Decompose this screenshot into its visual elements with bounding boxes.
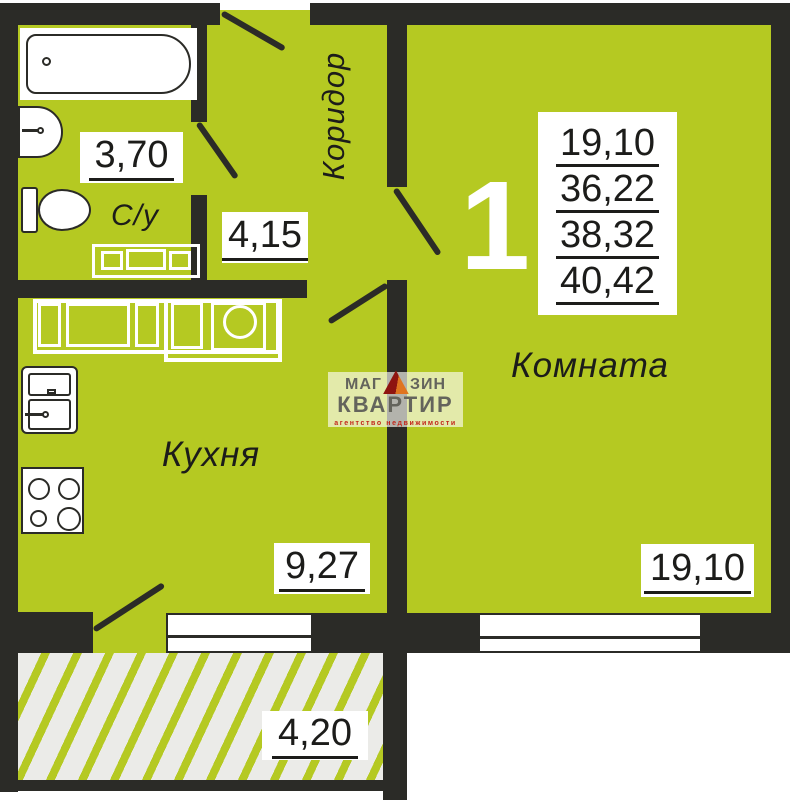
wall-corridor-room (387, 25, 407, 187)
counter-module-3 (135, 303, 159, 347)
living-room-name: Комната (505, 342, 675, 390)
bathroom-area-value: 3,70 (89, 134, 175, 181)
stove-burner-1 (28, 478, 50, 500)
wall-top-right (310, 3, 790, 25)
cabinet-drawer-2 (126, 249, 166, 270)
stove-burner-3 (30, 510, 47, 527)
wall-left (0, 3, 18, 792)
stove-burner-4 (57, 507, 81, 531)
floor-plan: 3,70 4,15 9,27 19,10 4,20 С/у Коридор Ко… (0, 0, 793, 800)
wall-hall-kitchen (18, 280, 307, 298)
agency-watermark: МАГ ЗИН КВАРТИР агентство недвижимости (328, 372, 463, 427)
watermark-tagline: агентство недвижимости (334, 418, 457, 429)
toilet-tank (21, 187, 38, 233)
wall-bottom-center (313, 613, 480, 653)
watermark-brand-left: МАГ (345, 377, 382, 393)
room-window-sill (478, 636, 702, 639)
bathroom-name: С/у (100, 196, 170, 236)
area-summary-box: 19,10 36,22 38,32 40,42 (538, 112, 677, 315)
triangle-logo-icon (383, 370, 409, 394)
wall-balcony-bottom (18, 780, 383, 791)
balcony-area-value: 4,20 (272, 712, 358, 759)
stove-burner-2 (58, 478, 80, 500)
summary-living-area: 19,10 (556, 124, 659, 167)
wall-kitchen-room (387, 280, 407, 653)
counter-module-1 (38, 303, 61, 347)
counter-module-4 (171, 302, 203, 349)
watermark-brand-right: ЗИН (410, 377, 446, 393)
watermark-brand-bottom: КВАРТИР (337, 393, 453, 417)
cabinet-drawer-3 (169, 251, 191, 270)
washbasin-tap-dot (37, 127, 44, 134)
room-area-value: 19,10 (644, 547, 751, 594)
fridge-handle-dot (42, 411, 49, 418)
bathtub (20, 28, 197, 100)
room-area-label: 19,10 (641, 544, 754, 597)
balcony-doorway (93, 612, 166, 653)
kitchen-area-value: 9,27 (279, 545, 365, 592)
wall-balcony-right (383, 653, 407, 800)
kitchen-sink-basin (223, 305, 257, 339)
summary-total-area: 40,42 (556, 262, 659, 305)
fridge-freezer-handle (47, 389, 56, 394)
fridge (21, 366, 78, 434)
bathroom-cabinet (92, 244, 200, 278)
hall-area-label: 4,15 (222, 212, 308, 263)
kitchen-name: Кухня (146, 431, 276, 479)
summary-area-2: 36,22 (556, 170, 659, 213)
bathroom-area-label: 3,70 (80, 132, 183, 183)
bathtub-rim (26, 34, 191, 94)
kitchen-area-label: 9,27 (274, 543, 370, 594)
wall-top-left (0, 3, 220, 25)
wall-right (771, 3, 790, 653)
fridge-handle (25, 413, 43, 416)
room-window (478, 613, 702, 653)
stove (21, 467, 84, 534)
corridor-name: Коридор (312, 41, 356, 191)
kitchen-window (166, 613, 313, 653)
wall-bottom-kitchen (18, 612, 93, 653)
rooms-count: 1 (440, 163, 550, 303)
kitchen-window-sill (166, 635, 313, 638)
wall-bottom-room (700, 613, 790, 653)
counter-module-2 (66, 303, 130, 347)
bathtub-drain (42, 57, 51, 66)
balcony-area-label: 4,20 (262, 711, 368, 760)
watermark-brand-top: МАГ ЗИН (345, 370, 446, 393)
hall-area-value: 4,15 (222, 214, 308, 261)
cabinet-drawer-1 (101, 251, 123, 270)
summary-area-3: 38,32 (556, 216, 659, 259)
